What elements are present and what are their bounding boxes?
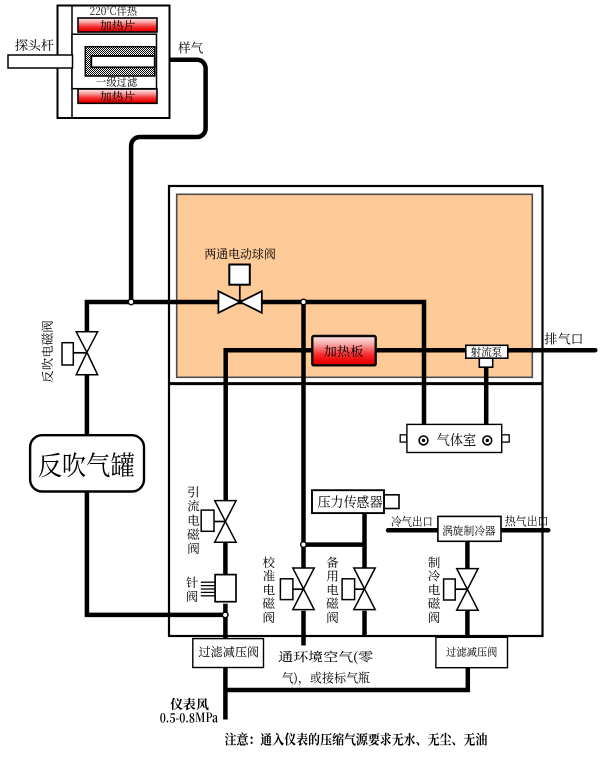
- svg-text:冷气出口: 冷气出口: [391, 513, 433, 530]
- svg-text:阀: 阀: [326, 608, 339, 626]
- svg-text:排气口: 排气口: [544, 329, 583, 348]
- svg-text:气)，或接标气瓶: 气)，或接标气瓶: [282, 668, 371, 687]
- svg-text:两通电动球阀: 两通电动球阀: [204, 245, 276, 263]
- svg-text:阀: 阀: [263, 608, 276, 626]
- svg-text:加热板: 加热板: [324, 341, 363, 360]
- svg-text:涡旋制冷器: 涡旋制冷器: [442, 523, 496, 539]
- svg-text:阀: 阀: [187, 539, 200, 557]
- svg-text:注意：通入仪表的压缩气源要求无水、无尘、无油: 注意：通入仪表的压缩气源要求无水、无尘、无油: [225, 729, 489, 749]
- svg-text:加热片: 加热片: [99, 88, 135, 105]
- svg-text:反吹气罐: 反吹气罐: [38, 444, 135, 483]
- svg-text:热气出口: 热气出口: [505, 513, 549, 530]
- svg-text:一级过滤: 一级过滤: [96, 74, 137, 90]
- svg-text:气体室: 气体室: [437, 430, 477, 450]
- svg-text:阀: 阀: [186, 587, 199, 605]
- svg-text:压力传感器: 压力传感器: [318, 492, 383, 512]
- svg-text:通环境空气(零: 通环境空气(零: [278, 647, 373, 666]
- svg-text:反吹电磁阀: 反吹电磁阀: [38, 320, 56, 383]
- svg-text:过滤减压阀: 过滤减压阀: [198, 643, 259, 661]
- svg-text:样气: 样气: [177, 37, 204, 56]
- svg-text:加热片: 加热片: [99, 17, 135, 34]
- svg-text:0.5-0.8MPa: 0.5-0.8MPa: [160, 708, 219, 727]
- svg-text:射流泵: 射流泵: [471, 344, 503, 360]
- svg-text:过滤减压阀: 过滤减压阀: [446, 644, 497, 660]
- svg-text:阀: 阀: [428, 608, 441, 626]
- svg-text:探头杆: 探头杆: [15, 35, 56, 54]
